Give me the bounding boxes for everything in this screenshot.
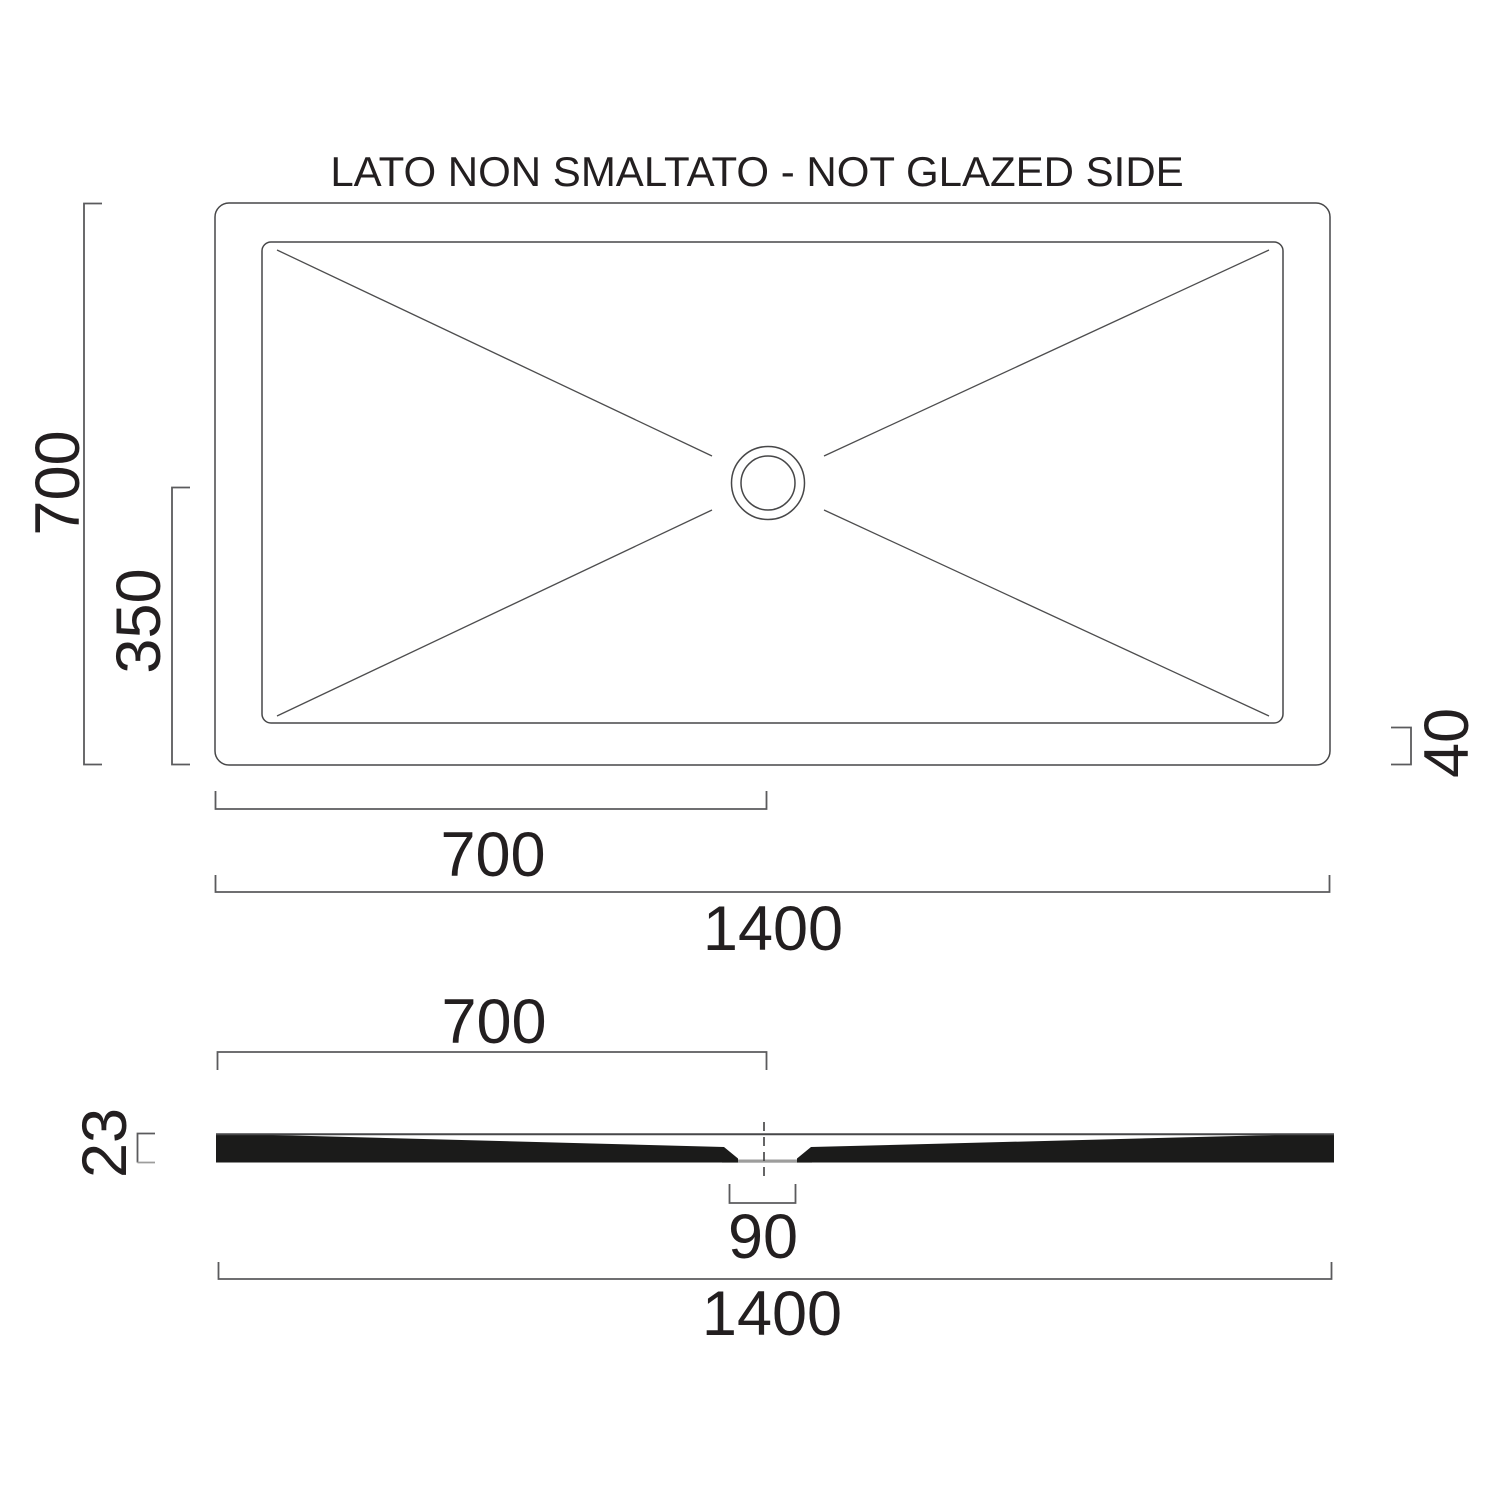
dim-label-height-700: 700 — [23, 430, 93, 535]
dim-line-edge-40 — [1391, 728, 1411, 765]
dim-label-half-width-700: 700 — [440, 820, 545, 890]
slope-diagonal-top-right — [824, 250, 1269, 456]
slope-diagonal-bottom-right — [824, 510, 1269, 716]
technical-drawing-svg: LATO NON SMALTATO - NOT GLAZED SIDE 700 … — [0, 0, 1500, 1500]
section-profile-left — [216, 1134, 738, 1163]
tray-outer-edge — [215, 203, 1330, 765]
drawing-page: LATO NON SMALTATO - NOT GLAZED SIDE 700 … — [0, 0, 1500, 1500]
dim-line-width-1400 — [216, 875, 1330, 892]
plan-view — [215, 203, 1330, 765]
slope-diagonal-bottom-left — [277, 510, 712, 716]
dim-label-edge-40: 40 — [1412, 708, 1482, 778]
dim-line-half-height-350 — [172, 488, 190, 765]
dim-label-section-1400: 1400 — [702, 1279, 842, 1349]
section-view: 700 23 90 1400 — [70, 987, 1334, 1349]
dim-line-drain-90 — [730, 1184, 796, 1203]
drawing-title: LATO NON SMALTATO - NOT GLAZED SIDE — [330, 148, 1183, 195]
dim-label-thickness-23: 23 — [70, 1108, 140, 1178]
drain-inner-circle — [741, 456, 795, 510]
dim-label-width-1400: 1400 — [703, 894, 843, 964]
slope-diagonal-top-left — [277, 250, 712, 456]
dim-label-half-height-350: 350 — [104, 568, 174, 673]
plan-view-dimensions: 700 350 40 700 1400 — [23, 204, 1482, 965]
dim-line-half-width-700 — [216, 791, 767, 809]
dim-label-drain-90: 90 — [728, 1202, 798, 1272]
dim-label-section-700: 700 — [441, 987, 546, 1057]
drain-outer-circle — [732, 447, 805, 520]
section-profile-right — [797, 1134, 1334, 1163]
dim-line-thickness-23 — [138, 1134, 156, 1163]
